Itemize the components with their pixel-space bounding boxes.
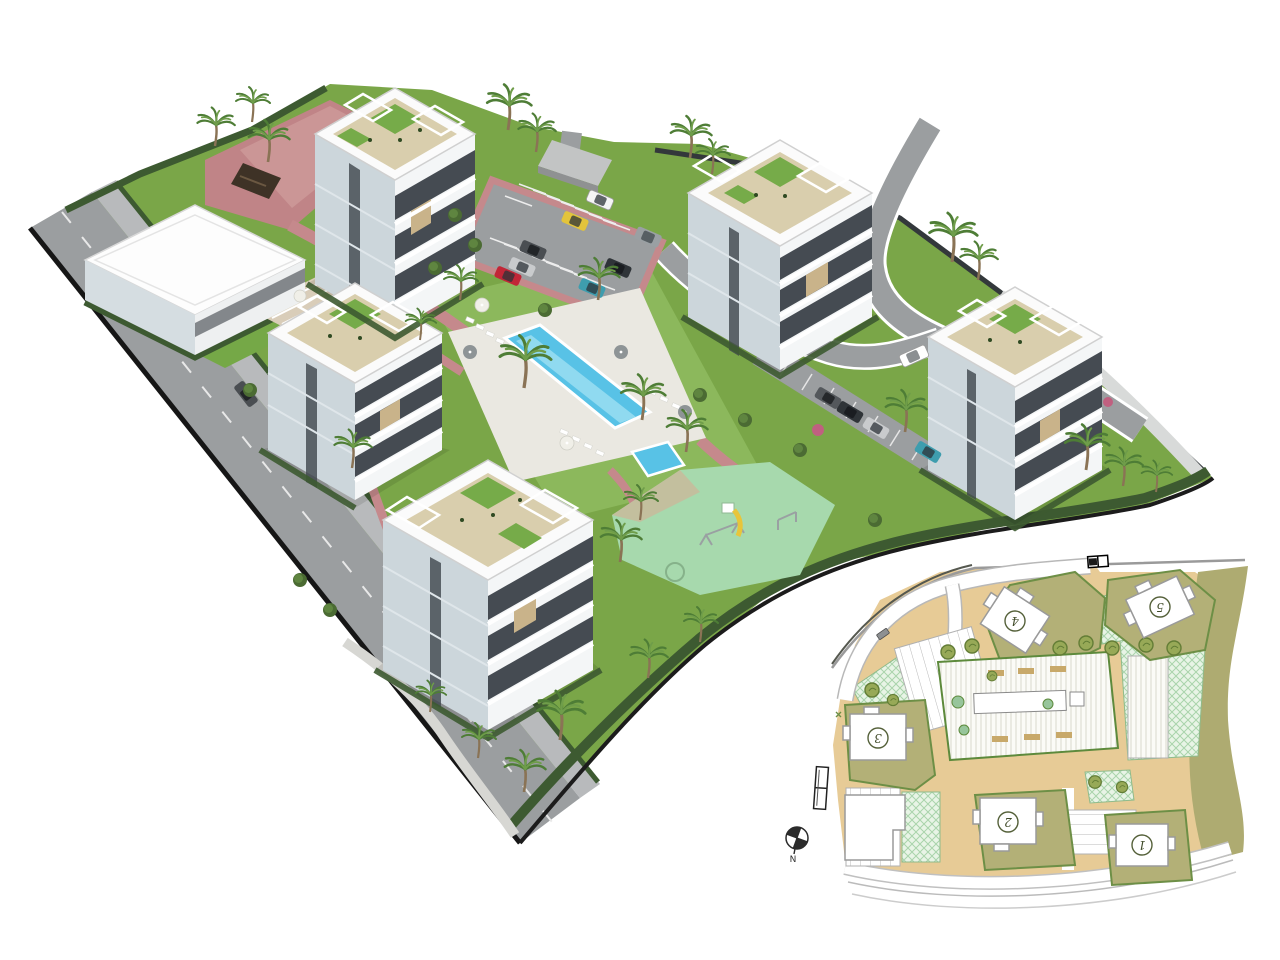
round-tree [538,303,552,317]
plan-label-1: 1 [1138,838,1146,852]
round-tree [468,238,482,252]
plan-label-3: 3 [874,731,882,745]
plan-label-5: 5 [1156,600,1164,614]
palm-tree [236,87,270,122]
round-tree [448,208,462,222]
plan-kids-pool [1070,692,1084,706]
round-tree [868,513,882,527]
round-tree [738,413,752,427]
round-tree [243,383,257,397]
flower-bush [812,424,824,436]
round-tree [693,388,707,402]
north-compass: N [783,824,811,865]
round-tree [428,261,442,275]
round-tree [793,443,807,457]
round-tree [293,573,307,587]
flower-bush [1103,397,1113,407]
umbrella [294,290,306,302]
plan-label-4: 4 [1011,614,1020,628]
plan-label-2: 2 [1004,815,1013,829]
architectural-visualization: 4 5 3 2 1 [0,0,1280,960]
plan-pool-plaza [938,652,1118,760]
render-canvas: 4 5 3 2 1 [0,0,1280,960]
round-tree [323,603,337,617]
compass-north-label: N [790,855,797,865]
site-plan-inset: 4 5 3 2 1 [783,555,1248,908]
